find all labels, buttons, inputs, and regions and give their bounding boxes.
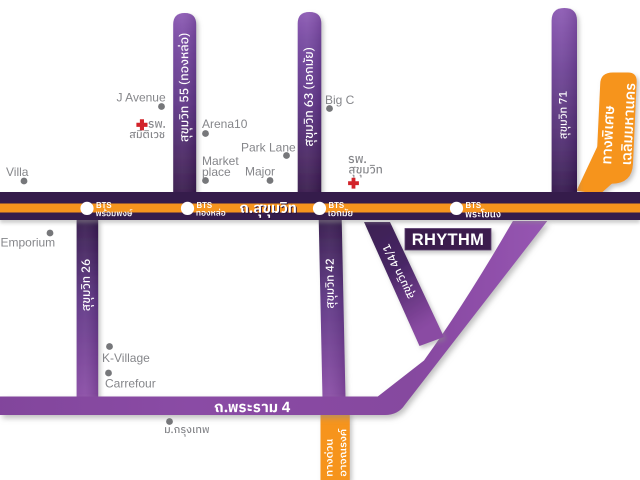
svg-text:Big C: Big C xyxy=(325,93,355,107)
svg-text:Emporium: Emporium xyxy=(1,235,56,249)
svg-text:BTS: BTS xyxy=(197,201,213,210)
svg-text:Arena10: Arena10 xyxy=(202,117,248,131)
svg-text:BTS: BTS xyxy=(466,201,482,210)
svg-text:BTS: BTS xyxy=(96,201,112,210)
svg-text:RHYTHM: RHYTHM xyxy=(412,231,484,249)
svg-text:Park Lane: Park Lane xyxy=(241,141,296,155)
svg-text:Villa: Villa xyxy=(6,165,29,179)
svg-text:J Avenue: J Avenue xyxy=(117,91,166,105)
svg-text:place: place xyxy=(202,165,231,179)
svg-text:BTS: BTS xyxy=(329,201,345,210)
svg-text:Carrefour: Carrefour xyxy=(105,376,156,390)
svg-text:K-Village: K-Village xyxy=(102,351,150,365)
svg-text:Major: Major xyxy=(245,165,275,179)
